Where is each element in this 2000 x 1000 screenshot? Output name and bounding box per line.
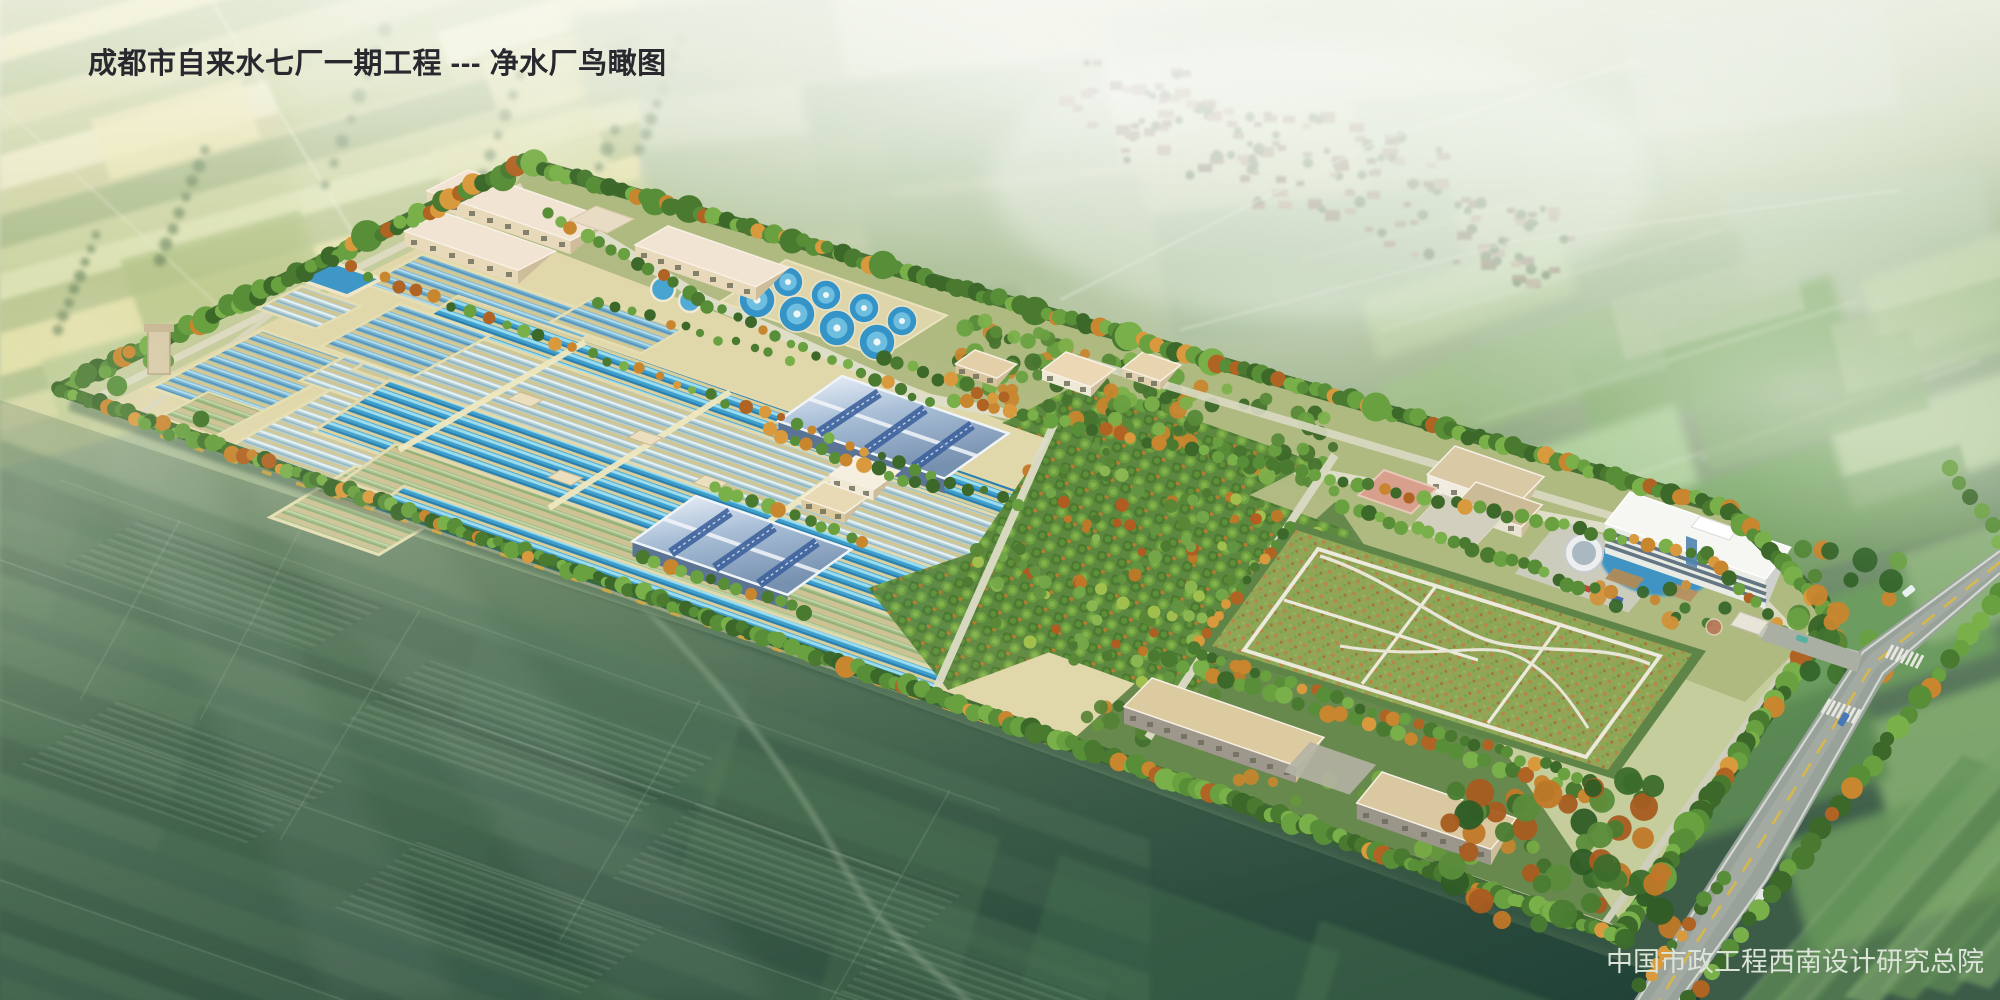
svg-text:成都市自来水七厂一期工程 --- 净水厂鸟瞰图: 成都市自来水七厂一期工程 --- 净水厂鸟瞰图 <box>88 46 667 80</box>
svg-text:中国市政工程西南设计研究总院: 中国市政工程西南设计研究总院 <box>1606 947 1984 977</box>
